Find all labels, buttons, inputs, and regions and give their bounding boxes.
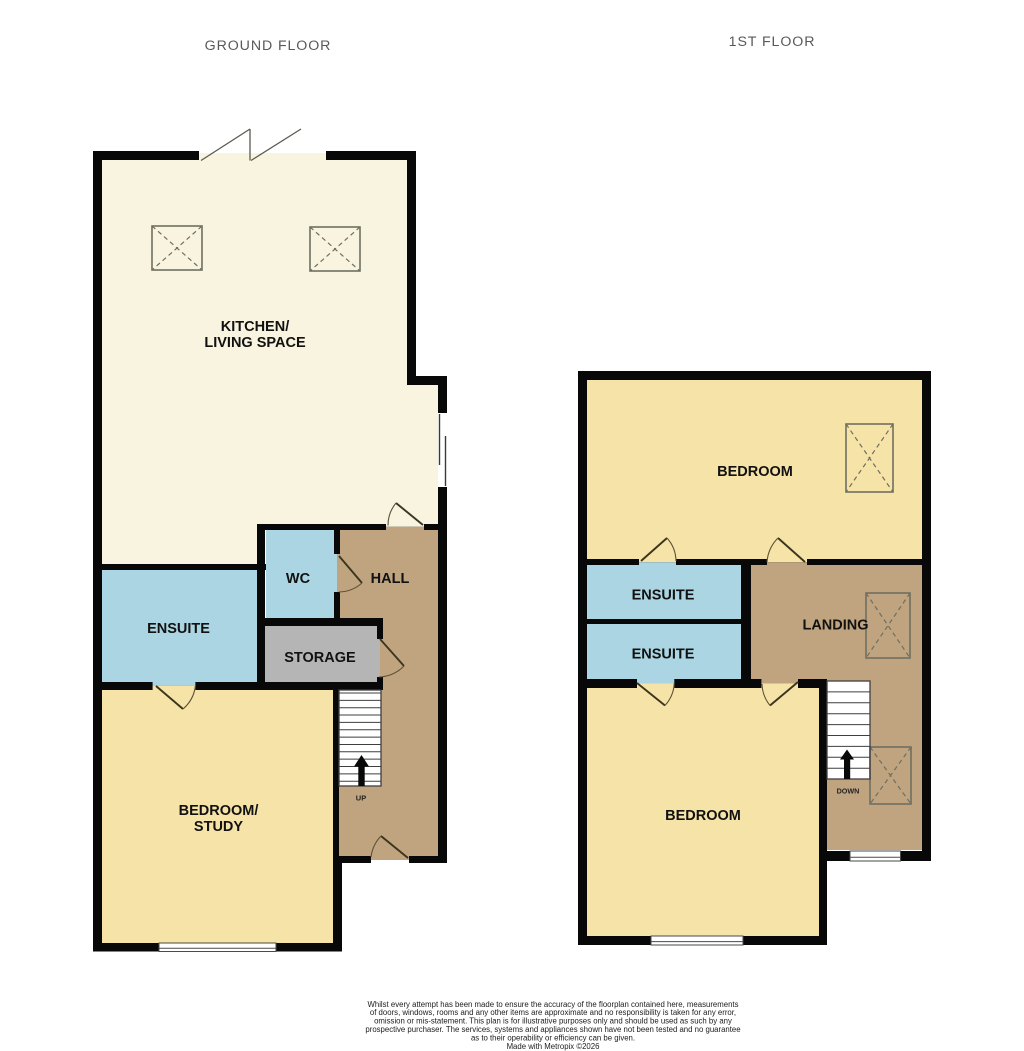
svg-text:LIVING SPACE: LIVING SPACE — [204, 335, 306, 351]
svg-text:HALL: HALL — [371, 571, 410, 587]
svg-text:DOWN: DOWN — [837, 787, 860, 796]
svg-text:ENSUITE: ENSUITE — [632, 647, 695, 663]
svg-text:ENSUITE: ENSUITE — [632, 588, 695, 604]
svg-text:STUDY: STUDY — [194, 819, 243, 835]
svg-text:BEDROOM: BEDROOM — [717, 464, 793, 480]
svg-text:Made with Metropix ©2026: Made with Metropix ©2026 — [507, 1042, 600, 1051]
svg-text:GROUND FLOOR: GROUND FLOOR — [205, 38, 332, 54]
svg-text:KITCHEN/: KITCHEN/ — [221, 319, 289, 335]
svg-text:STORAGE: STORAGE — [284, 650, 356, 666]
svg-text:BEDROOM/: BEDROOM/ — [179, 803, 259, 819]
svg-text:1ST FLOOR: 1ST FLOOR — [729, 34, 816, 50]
svg-text:ENSUITE: ENSUITE — [147, 621, 210, 637]
svg-text:BEDROOM: BEDROOM — [665, 808, 741, 824]
svg-text:LANDING: LANDING — [802, 618, 868, 634]
svg-text:UP: UP — [356, 794, 366, 803]
svg-text:WC: WC — [286, 571, 311, 587]
